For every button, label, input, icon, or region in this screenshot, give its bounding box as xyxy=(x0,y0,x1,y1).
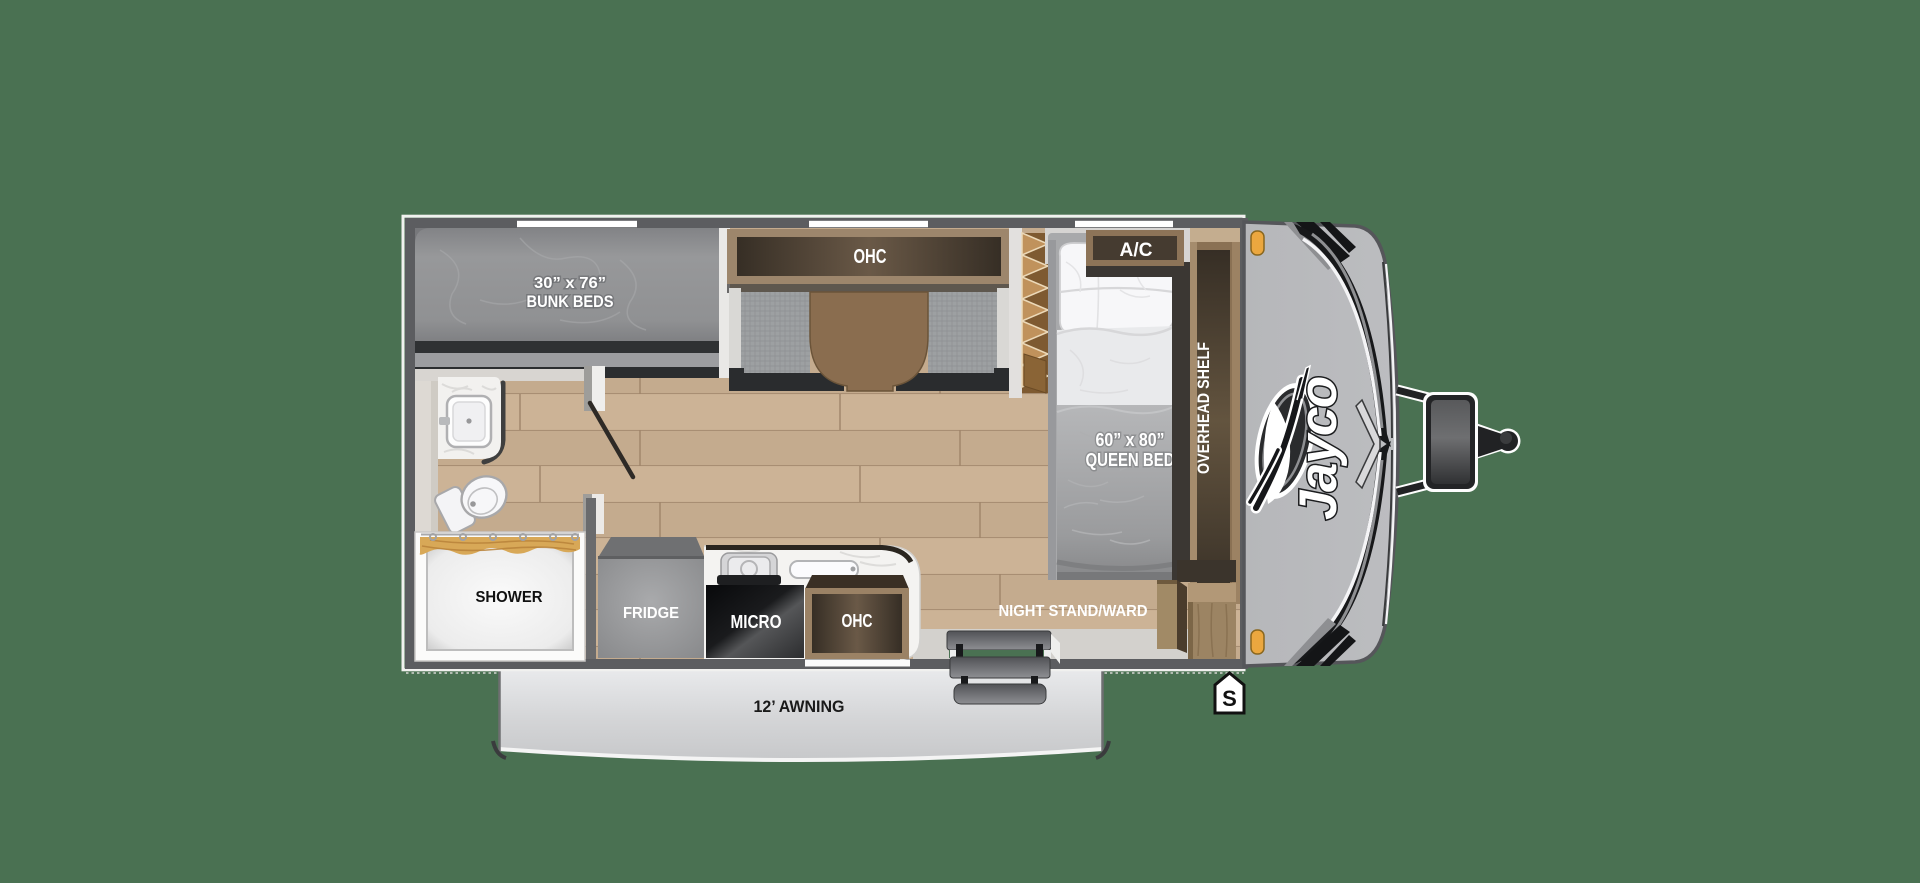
svg-text:OHC: OHC xyxy=(854,246,887,268)
svg-text:QUEEN BED: QUEEN BED xyxy=(1086,450,1175,470)
svg-text:NIGHT STAND/WARD: NIGHT STAND/WARD xyxy=(999,603,1148,620)
svg-text:60” x 80”: 60” x 80” xyxy=(1096,430,1165,450)
svg-text:FRIDGE: FRIDGE xyxy=(623,605,679,622)
svg-text:A/C: A/C xyxy=(1120,240,1153,261)
svg-text:30” x 76”: 30” x 76” xyxy=(534,275,606,292)
svg-text:OHC: OHC xyxy=(842,611,873,631)
svg-text:SHOWER: SHOWER xyxy=(476,589,543,606)
svg-text:OVERHEAD SHELF: OVERHEAD SHELF xyxy=(1194,342,1213,474)
svg-text:MICRO: MICRO xyxy=(731,612,782,632)
svg-text:S: S xyxy=(1222,686,1237,711)
svg-text:Jayco: Jayco xyxy=(1289,377,1348,520)
svg-text:BUNK BEDS: BUNK BEDS xyxy=(527,293,614,311)
svg-text:12’ AWNING: 12’ AWNING xyxy=(754,698,845,716)
